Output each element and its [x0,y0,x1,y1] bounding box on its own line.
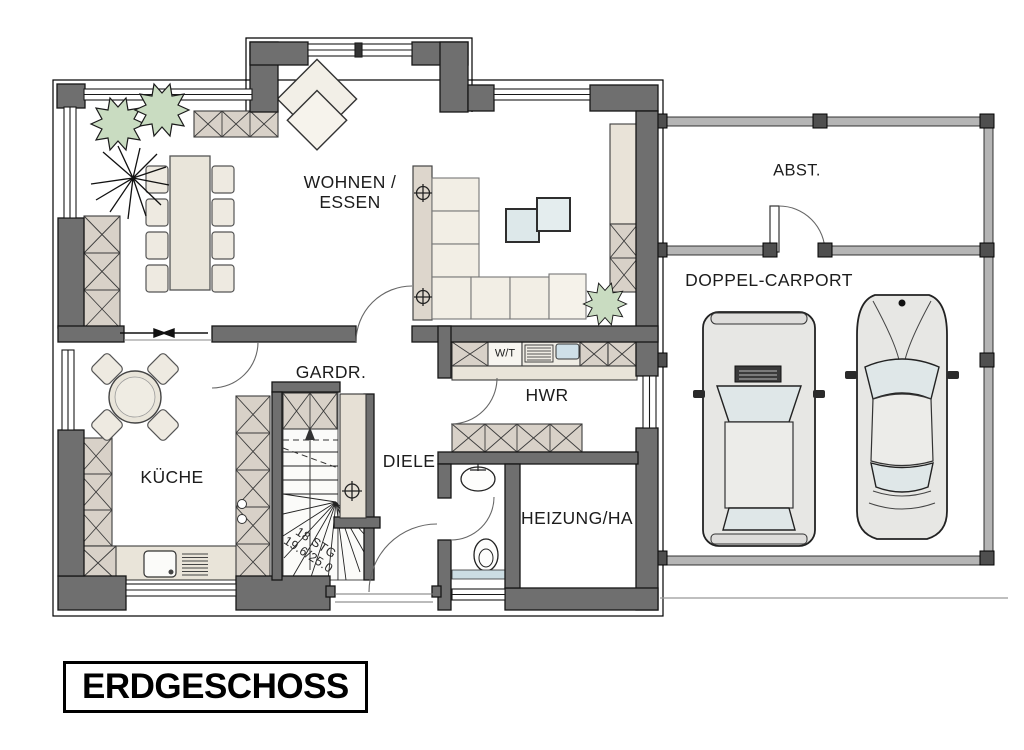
cabinet-living-tall [610,124,638,224]
hwr-counter [452,366,637,380]
kitchen-door-arc [212,342,258,388]
sink-drainer [182,554,208,575]
stair-railing [340,394,366,518]
dining-table [170,156,210,290]
label-carport: DOPPEL-CARPORT [685,270,853,290]
living-door-arc [356,286,412,342]
wall-corner-tr [590,85,658,111]
wc-door-arc [451,497,494,540]
label-living-room: WOHNEN / ESSEN [304,172,397,212]
sliding-door [120,329,212,340]
label-heating: HEIZUNG/HA [521,508,633,528]
label-wardrobe: GARDR. [296,362,366,382]
floor-title-box: ERDGESCHOSS [63,661,368,713]
car-left [693,312,825,546]
entry-threshold [335,594,433,602]
living-label-line1: WOHNEN / [304,172,397,192]
label-storage: ABST. [773,162,821,181]
label-kitchen: KÜCHE [140,467,203,487]
plant-leaf [91,98,145,150]
label-hallway: DIELE [383,451,436,471]
abst-door [770,206,825,252]
dryer-icon [556,344,579,359]
entry-door-arc [369,524,437,592]
floor-plan-drawing [0,0,1024,750]
coffee-table-2 [537,198,570,231]
floor-plan-canvas: WOHNEN / ESSEN GARDR. KÜCHE DIELE HWR HE… [0,0,1024,750]
living-label-line2: ESSEN [304,192,397,212]
bay-armchair [272,59,363,150]
kitchen-table-set [90,352,180,442]
wall-corner-tl [57,84,85,108]
coffee-table [506,209,539,242]
hwr-door-arc [451,378,497,424]
label-utility: HWR [526,385,569,405]
wall-corner-bl [58,576,126,610]
label-washer-dryer: W/T [495,348,515,361]
sofa [413,166,586,320]
car-right [845,295,959,539]
dining-set [146,156,234,292]
wc-shelf [452,570,505,579]
floor-title: ERDGESCHOSS [82,667,349,707]
